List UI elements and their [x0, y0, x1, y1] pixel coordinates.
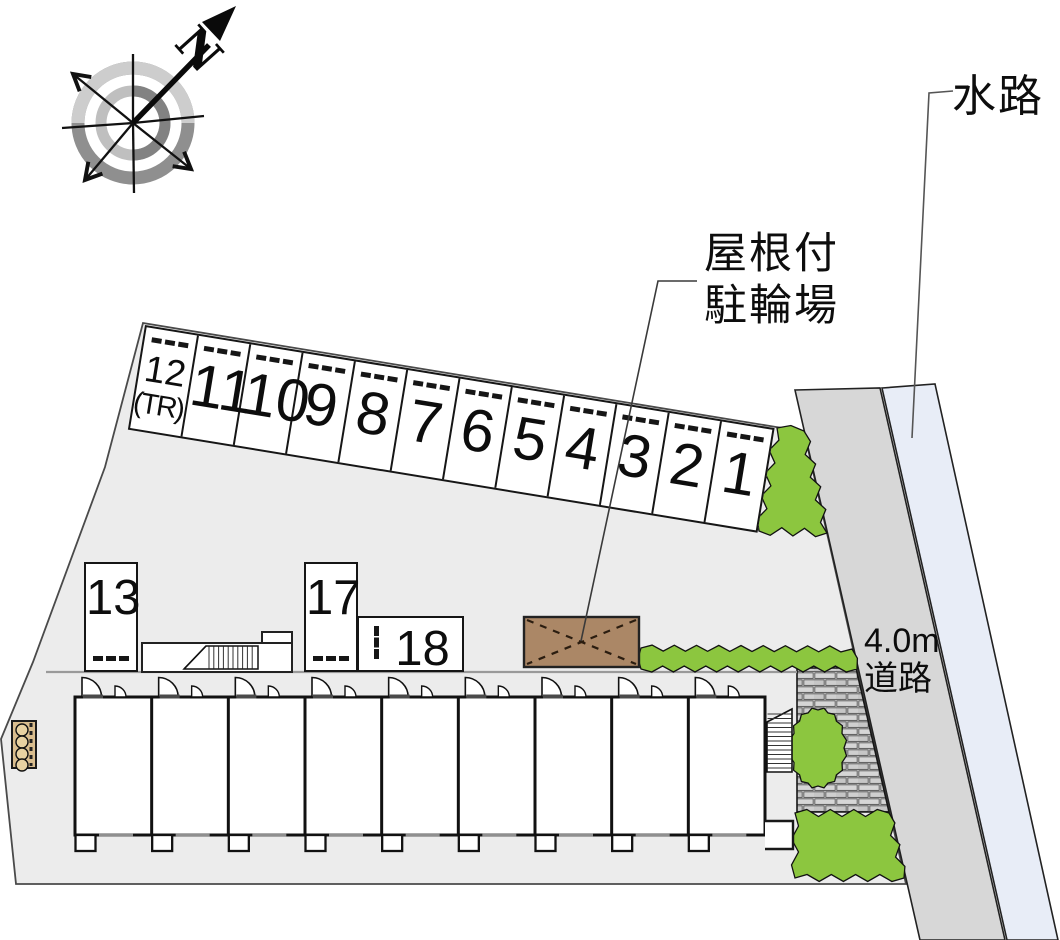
balcony-step [229, 835, 249, 851]
stall-marking [151, 337, 189, 348]
balcony-step [306, 835, 326, 851]
stall-number: 1 [709, 437, 770, 510]
planter-box [12, 721, 36, 771]
stall-number: 3 [604, 420, 665, 493]
external-stair-right [767, 709, 792, 772]
stall-number: 7 [395, 386, 456, 459]
stall-number: 4 [552, 412, 613, 485]
parking-stall-18: 18 [357, 616, 464, 672]
road-width-label: 4.0m 道路 [864, 622, 940, 698]
parking-stall-13: 13 [84, 562, 138, 672]
stall-number: 5 [500, 403, 561, 476]
lawn-area [792, 810, 905, 882]
site-plan: N 12 (TR) 11 10 9 8 7 6 5 4 3 2 1 13 17 … [0, 0, 1060, 940]
stall-number: 9 [290, 369, 351, 442]
stall-marking [313, 656, 349, 661]
balcony-step [76, 835, 96, 851]
balcony-step [689, 835, 709, 851]
bicycle-shed [524, 617, 639, 667]
bicycle-parking-label: 屋根付 駐輪場 [704, 228, 839, 333]
stall-marking [93, 656, 129, 661]
stall-number: 18 [371, 621, 474, 677]
bicycle-parking-label-line1: 屋根付 [704, 228, 839, 280]
stall-number: 2 [656, 429, 717, 502]
stall-number: 13 [86, 570, 136, 626]
balcony-step [152, 835, 172, 851]
waterway-label: 水路 [952, 60, 1044, 124]
compass-rose: N [62, 6, 236, 193]
stall-number: 10 [238, 360, 299, 433]
stall-number: 8 [343, 377, 404, 450]
planter-circle [16, 724, 28, 736]
planter-circle [16, 759, 28, 771]
road-width-label-line1: 4.0m [864, 622, 940, 660]
bicycle-parking-label-line2: 駐輪場 [704, 280, 839, 332]
balcony-step [612, 835, 632, 851]
balcony-step [459, 835, 479, 851]
balcony-step [536, 835, 556, 851]
planter-circle [16, 736, 28, 748]
stall-number: 17 [306, 570, 356, 626]
planter-circle [16, 748, 28, 760]
stall-number: 6 [447, 394, 508, 467]
parking-stall-17: 17 [304, 562, 358, 672]
stall-number: 11 [186, 352, 247, 425]
balcony-step [382, 835, 402, 851]
road-width-label-line2: 道路 [864, 660, 940, 698]
building-step [765, 821, 793, 849]
